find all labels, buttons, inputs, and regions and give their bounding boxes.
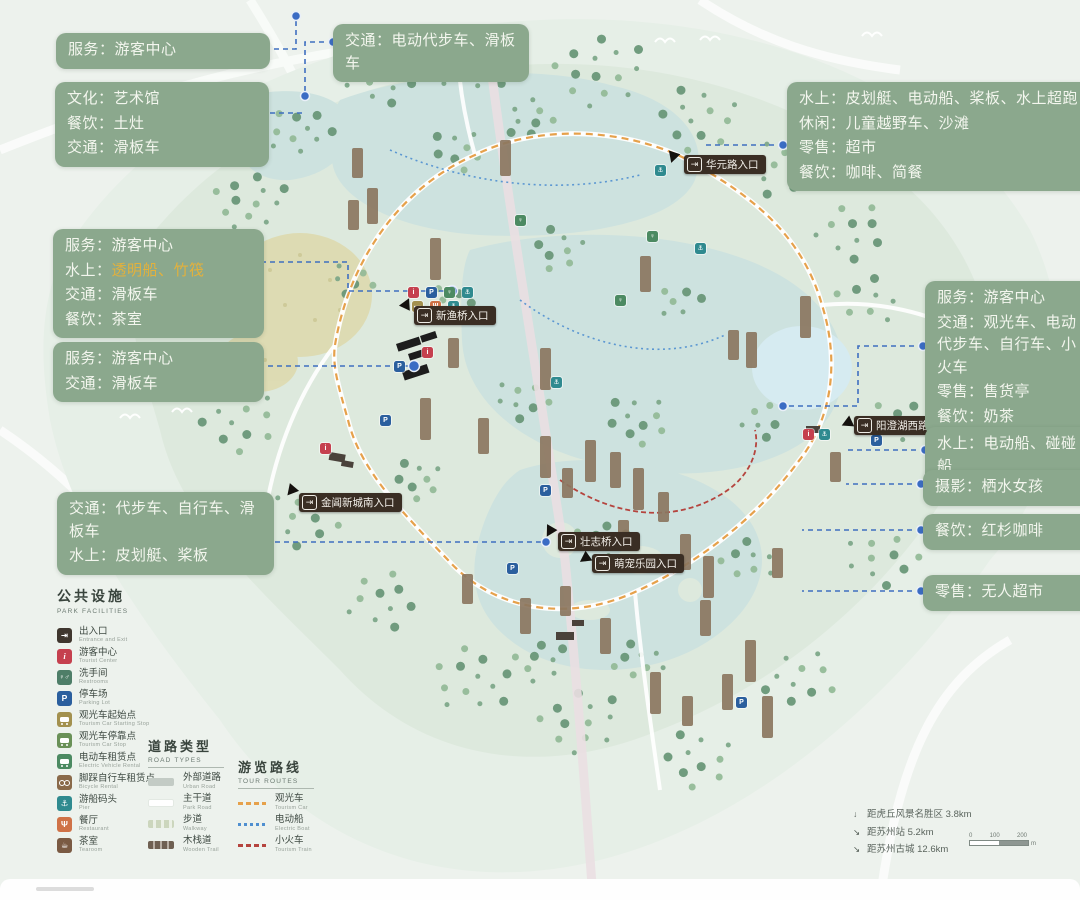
legend-item-tour-car-start: 观光车起始点Tourism Car Starting Stop [57,712,155,727]
callout-photography: 摄影：栖水女孩 [923,470,1080,506]
entrance-huayuan-road: ⇥ 华元路入口 [684,155,766,174]
road-type-park: 主干道Park Road [148,796,224,810]
callout-line-label: 交通： [65,286,112,303]
legend-item-restaurant: Ψ 餐厅Restaurant [57,817,155,832]
legend-item-pier: ⚓ 游船码头Pier [57,796,155,811]
arrow-se-icon: ↘ [853,842,862,858]
callout-line-value: 栖水女孩 [982,478,1044,495]
callout-ne-water-activities: 水上：皮划艇、电动船、桨板、水上超跑休闲：儿童越野车、沙滩零售：超市餐饮：咖啡、… [787,82,1080,191]
callout-line-label: 餐饮： [67,115,114,132]
callout-line-label: 摄影： [935,478,982,495]
callout-line-value: 咖啡、简餐 [846,164,924,181]
callout-retail: 零售：无人超市 [923,575,1080,611]
legend-title: 游览路线 [238,757,314,776]
distance-notes: ↓ 距虎丘风景名胜区 3.8km ↘ 距苏州站 5.2km ↘ 距苏州古城 12… [853,806,972,859]
callout-line-value: 售货亭 [984,383,1031,400]
info-icon: i [57,649,72,664]
road-type-wooden: 木栈道Wooden Trail [148,838,224,852]
legend-subtitle: ROAD TYPES [148,757,224,764]
callout-west2-visitor-center: 服务：游客中心交通：滑板车 [53,342,264,402]
callout-line-value: 游客中心 [115,41,177,58]
legend-item-ev-rental: 电动车租赁点Electric Vehicle Rental [57,754,155,769]
tour-route-car: 观光车Tourism Car [238,796,314,810]
tourism-train-swatch [238,844,266,847]
tea-icon: ☕ [57,838,72,853]
legend-subtitle: TOUR ROUTES [238,778,314,785]
callout-line-value: 茶室 [112,311,143,328]
road-type-urban: 外部道路Urban Road [148,775,224,789]
urban-road-swatch [148,778,174,786]
entrance-icon: ⇥ [57,628,72,643]
entrance-label: 萌宠乐园入口 [614,556,677,571]
callout-line-value: 游客中心 [112,350,174,367]
legend-item-parking: P 停车场Parking Lot [57,691,155,706]
entrance-label: 华元路入口 [706,157,759,172]
entrance-icon: ⇥ [687,157,702,172]
callout-line-label: 水上： [937,435,984,452]
legend-title: 公共设施 [57,586,155,606]
callout-line-label: 服务： [65,350,112,367]
legend-item-tearoom: ☕ 茶室Tearoom [57,838,155,853]
callout-line-label: 水上： [65,262,112,279]
callout-line-label: 餐饮： [799,164,846,181]
callout-line-label: 零售： [937,383,984,400]
distance-line: ↓ 距虎丘风景名胜区 3.8km [853,806,972,824]
callout-nw-visitor-center: 服务：游客中心 [56,33,270,69]
callout-line-label: 水上： [69,547,116,564]
entrance-label: 金阊新城南入口 [321,495,395,510]
callout-line-value: 无人超市 [982,583,1044,600]
callout-line-label: 交通： [345,32,392,49]
legend-title: 道路类型 [148,736,224,755]
bus-icon [57,733,72,748]
entrance-icon: ⇥ [561,534,576,549]
legend-item-restrooms: ♀♂ 洗手间Restrooms [57,670,155,685]
callout-line-label: 交通： [937,314,984,331]
entrance-icon: ⇥ [857,418,872,433]
entrance-label: 新渔桥入口 [436,308,489,323]
callout-line-value: 滑板车 [114,139,161,156]
callout-line-label: 餐饮： [937,408,984,425]
callout-line-label: 餐饮： [935,522,982,539]
entrance-icon: ⇥ [302,495,317,510]
entrance-label: 壮志桥入口 [580,534,633,549]
legend-road-types: 道路类型 ROAD TYPES 外部道路Urban Road 主干道Park R… [148,736,224,852]
legend-tour-routes: 游览路线 TOUR ROUTES 观光车Tourism Car 电动船Elect… [238,757,314,852]
legend-item-tourist-center: i 游客中心Tourist Center [57,649,155,664]
restaurant-icon: Ψ [57,817,72,832]
callout-line-label: 休闲： [799,115,846,132]
callout-line-label: 水上： [799,90,846,107]
callout-east-visitor-center: 服务：游客中心交通：观光车、电动代步车、自行车、小火车零售：售货亭餐饮：奶茶 [925,281,1080,435]
callout-line-label: 服务： [65,237,112,254]
tour-route-train: 小火车Tourism Train [238,838,314,852]
entrance-xinyu-bridge: ⇥ 新渔桥入口 [414,306,496,325]
callout-line-value: 艺术馆 [114,90,161,107]
callout-line-label: 餐饮： [65,311,112,328]
entrance-pet-park: ⇥ 萌宠乐园入口 [592,554,684,573]
callout-line-value: 超市 [846,139,877,156]
park-road-swatch [148,799,174,807]
bus-icon [57,754,72,769]
callout-line-value: 奶茶 [984,408,1015,425]
callout-line-label: 交通： [67,139,114,156]
callout-line-label: 零售： [799,139,846,156]
callout-line-label: 零售： [935,583,982,600]
bicycle-icon [57,775,72,790]
callout-line-value: 游客中心 [984,289,1046,306]
legend-facilities: 公共设施 PARK FACILITIES ⇥ 出入口Entrance and E… [57,586,155,853]
callout-line-value: 红杉咖啡 [982,522,1044,539]
distance-line: ↘ 距苏州站 5.2km [853,824,972,842]
callout-line-value: 滑板车 [112,286,159,303]
footer-fineprint [36,887,94,891]
arrow-se-icon: ↘ [853,825,862,841]
park-map-page: iP♀⚓▬Ψ⚓iPiPPPi⚓PP♀⚓⚓♀⚓♀ 服务：游客中心 交通：电动代步车… [0,0,1080,900]
callout-line-value: 透明船、竹筏 [112,262,205,279]
entrance-icon: ⇥ [595,556,610,571]
callout-line-label: 服务： [937,289,984,306]
callout-line-label: 文化： [67,90,114,107]
callout-line-value: 皮划艇、桨板 [116,547,209,564]
tour-car-swatch [238,802,266,805]
callout-coffee: 餐饮：红杉咖啡 [923,514,1080,550]
distance-line: ↘ 距苏州古城 12.6km [853,841,972,859]
scale-bar-rule [969,840,1029,846]
entrance-jinchang-south: ⇥ 金阊新城南入口 [299,493,402,512]
callout-line-label: 交通： [65,375,112,392]
footer-bar [0,879,1080,900]
arrow-down-icon: ↓ [853,807,862,823]
callout-line-value: 皮划艇、电动船、桨板、水上超跑 [846,90,1079,107]
road-type-walkway: 步道Walkway [148,817,224,831]
callout-line-value: 滑板车 [112,375,159,392]
wooden-trail-swatch [148,841,174,849]
callout-culture-dining: 文化：艺术馆餐饮：土灶交通：滑板车 [55,82,269,167]
scale-bar: 0 100 200 m [969,833,1029,846]
walkway-swatch [148,820,174,828]
callout-line-label: 交通： [69,500,116,517]
callout-line-value: 儿童越野车、沙滩 [846,115,970,132]
electric-boat-swatch [238,823,266,826]
entrance-zhuangzhi-bridge: ⇥ 壮志桥入口 [558,532,640,551]
tour-route-boat: 电动船Electric Boat [238,817,314,831]
boat-icon: ⚓ [57,796,72,811]
parking-icon: P [57,691,72,706]
entrance-icon: ⇥ [417,308,432,323]
legend-subtitle: PARK FACILITIES [57,608,155,615]
callout-west-visitor-center: 服务：游客中心水上：透明船、竹筏交通：滑板车餐饮：茶室 [53,229,264,338]
callout-line-label: 服务： [68,41,115,58]
callout-line-value: 游客中心 [112,237,174,254]
legend-item-bicycle-rental: 脚踩自行车租赁点Bicycle Rental [57,775,155,790]
legend-item-entrance: ⇥ 出入口Entrance and Exit [57,628,155,643]
callout-sw-transport: 交通：代步车、自行车、滑板车水上：皮划艇、桨板 [57,492,274,575]
restroom-icon: ♀♂ [57,670,72,685]
legend-item-tour-car-stop: 观光车停靠点Tourism Car Stop [57,733,155,748]
bus-icon [57,712,72,727]
callout-line-value: 土灶 [114,115,145,132]
callout-top-transport: 交通：电动代步车、滑板车 [333,24,529,82]
